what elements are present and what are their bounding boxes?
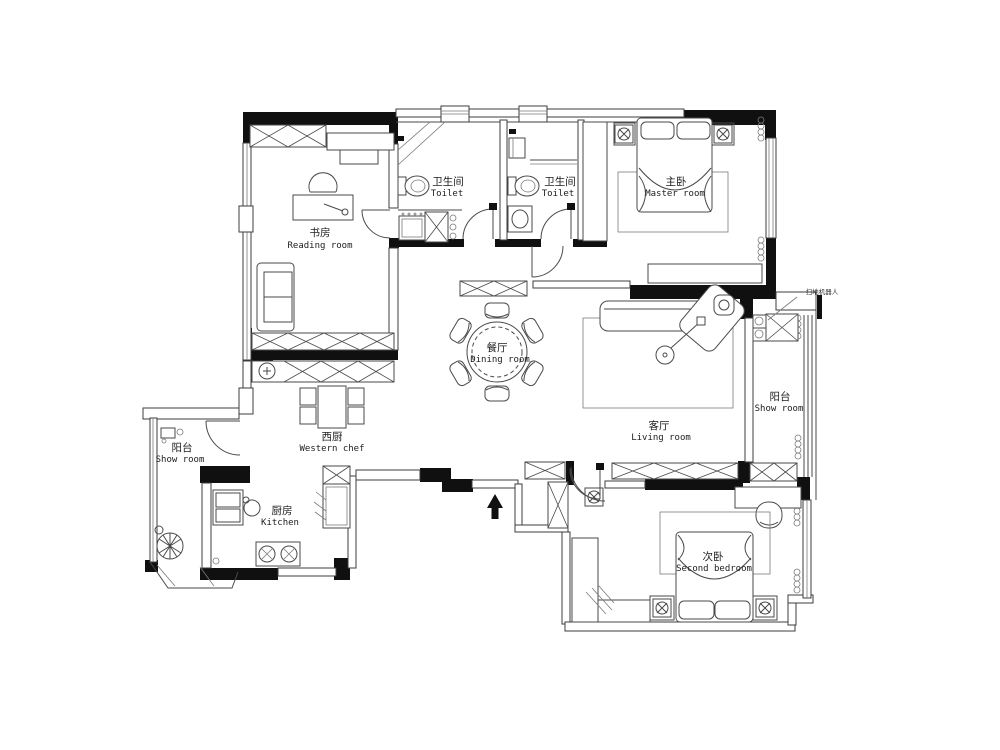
pot [244,500,260,516]
tall-cabinet [323,466,350,484]
counter-cabinets [252,361,394,382]
basin [508,206,532,232]
toilet-a: 卫生间 Toilet [397,122,464,242]
chair [348,388,364,405]
wardrobe [583,122,607,241]
wardrobe [572,538,598,622]
shower-head-icon [509,129,516,134]
entry-foyer [487,462,568,528]
room-label-zh: 阳台 [172,441,193,454]
room-label-zh: 餐厅 [487,341,508,354]
master-room: 主卧 Master room [583,118,762,283]
washing-machine [399,216,425,240]
plant [155,526,183,559]
room-label-zh: 书房 [310,226,331,239]
pillow [641,122,674,139]
living-room: 客厅 Living room [583,282,747,479]
desk-chair [309,173,337,192]
room-label-en: Western chef [299,444,364,454]
room-label-en: Toilet [431,189,464,199]
room-label-zh: 卫生间 [544,175,576,188]
reading-room: 书房 Reading room [250,125,394,350]
ceiling-lamp-icon [615,125,633,143]
desk [293,195,353,220]
table [318,386,346,428]
chair [348,407,364,424]
room-label-zh: 主卧 [666,175,687,188]
low-bench [648,264,762,283]
ceiling-lamp-icon [756,599,774,617]
toilet-bowl [508,176,539,196]
pillow [679,601,714,619]
entry-arrow-icon [487,494,503,519]
toilet-bowl [398,176,429,196]
room-label-en: Show room [755,404,804,414]
laundry-cabinet [425,212,448,242]
hallway-cabinet [460,281,527,296]
pillow [715,601,750,619]
double-bed [676,532,753,622]
balcony-cabinet [750,463,797,481]
dining-room: 餐厅 Dining room [448,303,545,401]
south-cabinet [612,463,738,479]
room-label-zh: 次卧 [703,550,724,563]
floor-plan-page: 书房 Reading room 卫生间 Toilet [0,0,1000,750]
fixture [161,428,175,438]
room-label-en: Kitchen [261,518,299,528]
shoe-cabinet [525,462,565,479]
wall-cabinet [509,138,525,158]
ceiling-lamp-icon [653,599,671,617]
foyer-cabinet [548,482,568,528]
shower-corner [398,122,445,165]
desk-chair [756,502,782,528]
room-label-zh: 西厨 [322,431,343,443]
balcony-left: 阳台 Show room [155,428,204,559]
stove [256,542,300,566]
balcony-right: 扫地机器人 阳台 Show room [750,287,839,481]
room-label-zh: 厨房 [272,504,293,517]
washer-stack [753,315,766,341]
side-table [714,295,734,315]
desk [735,487,801,528]
room-label-en: Reading room [287,241,352,251]
toilet-b: 卫生间 Toilet [508,129,577,232]
room-label-en: Second bedroom [676,564,752,574]
room-label-zh: 客厅 [649,419,670,432]
room-label-en: Dining room [470,355,530,365]
dresser [327,133,394,150]
room-label-en: Toilet [542,189,575,199]
room-label-zh: 阳台 [770,390,791,403]
wardrobe [250,125,326,147]
room-label-en: Living room [631,433,691,443]
floor-plan-drawing: 书房 Reading room 卫生间 Toilet [0,0,1000,750]
room-label-en: Master room [645,189,705,199]
fridge [323,484,350,528]
room-label-en: Show room [156,455,205,465]
window [766,138,776,238]
robot-vacuum-note: 扫地机器人 [806,287,839,296]
window [150,418,157,562]
shower-head-icon [397,136,404,141]
sofa [257,263,294,331]
room-label-zh: 卫生间 [432,175,464,188]
western-kitchen: 西厨 Western chef [252,361,394,454]
chair [300,407,316,424]
bench [340,150,378,164]
low-cabinets [252,333,394,350]
ceiling-lamp-icon [714,125,732,143]
chair [300,388,316,405]
pillow [677,122,710,139]
second-bedroom: 次卧 Second bedroom [572,487,801,622]
